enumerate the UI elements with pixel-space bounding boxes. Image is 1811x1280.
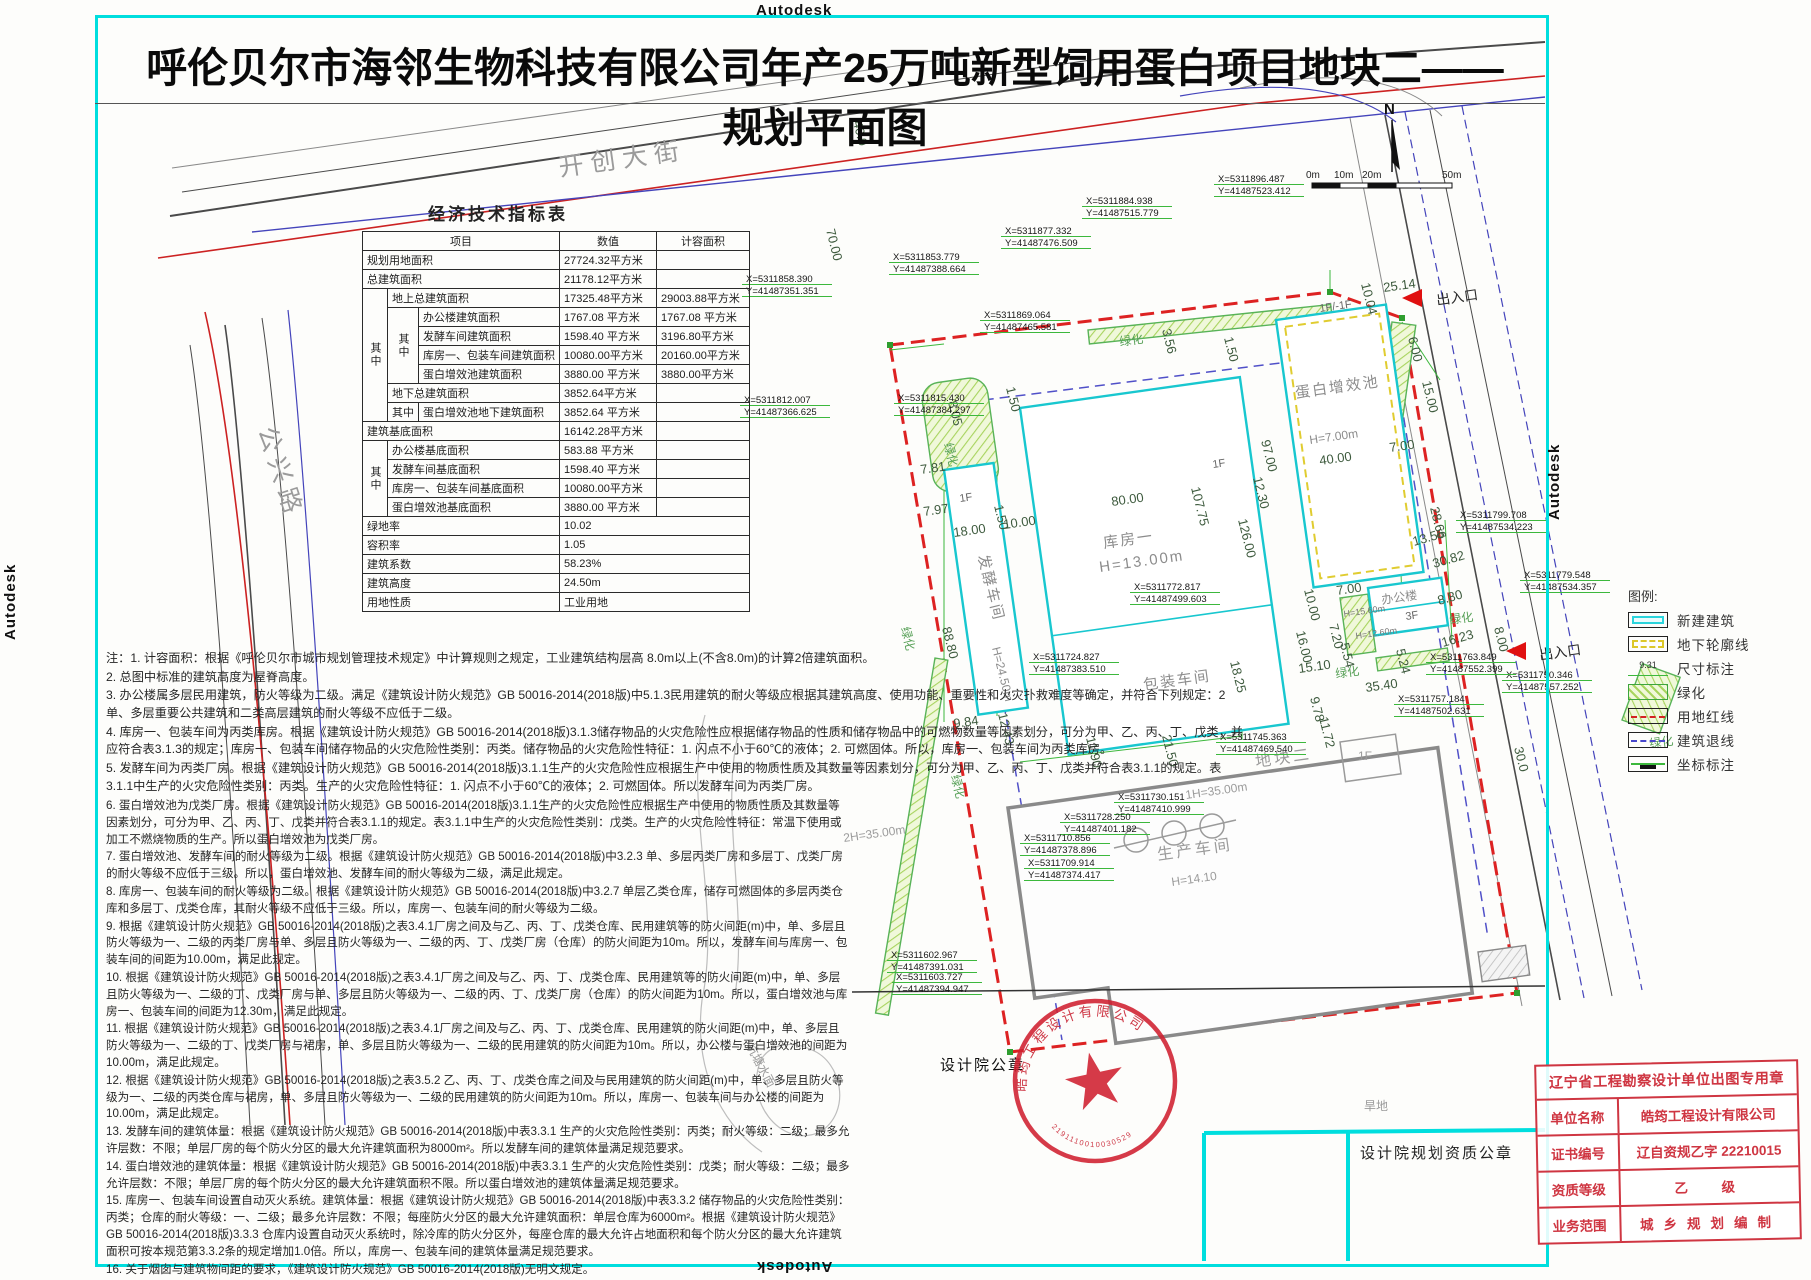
cell-value: 10.02 xyxy=(560,517,750,536)
cell-label: 建筑系数 xyxy=(363,555,560,574)
scanned-plan-page: 开创大街公兴路N0m10m20m50m出入口出入口发酵车间H=24.50m1F库… xyxy=(0,0,1811,1280)
cell-capacity xyxy=(657,251,750,270)
cell-capacity: 3196.80平方米 xyxy=(657,327,750,346)
planning-qualification-seal-label: 设计院规划资质公章 xyxy=(1360,1142,1513,1163)
certificate-key: 单位名称 xyxy=(1537,1099,1620,1135)
table-row: 蛋白增效池建筑面积 3880.00 平方米 3880.00平方米 xyxy=(363,365,750,384)
legend-item-red-line: 用地红线 xyxy=(1628,707,1788,724)
note-line: 14. 蛋白增效池的建筑体量：根据《建筑设计防火规范》GB 50016-2014… xyxy=(106,1159,850,1193)
certificate-value: 乙 级 xyxy=(1620,1167,1799,1205)
legend-item-dimension: 9.31 尺寸标注 xyxy=(1628,659,1788,676)
certificate-value: 皓筠工程设计有限公司 xyxy=(1619,1095,1798,1133)
cell-label: 库房一、包装车间基底面积 xyxy=(388,479,560,498)
col-value: 数值 xyxy=(560,232,657,251)
legend-title: 图例: xyxy=(1628,586,1788,605)
seal-number-text: 2191110010030529 xyxy=(1049,1107,1135,1159)
cell-label: 用地性质 xyxy=(363,593,560,612)
cell-value: 21178.12平方米 xyxy=(560,270,657,289)
cell-value: 10080.00平方米 xyxy=(560,346,657,365)
table-row: 绿地率 10.02 xyxy=(363,517,750,536)
note-line: 4. 库房一、包装车间为丙类库房。根据《建筑设计防火规范》GB 50016-20… xyxy=(106,724,1246,759)
certificate-value: 城乡规划编制 xyxy=(1621,1203,1800,1241)
certificate-row: 业务范围 城乡规划编制 xyxy=(1539,1203,1800,1242)
cell-label: 库房一、包装车间建筑面积 xyxy=(419,346,560,365)
note-line: 7. 蛋白增效池、发酵车间的耐火等级为二级。根据《建筑设计防火规范》GB 500… xyxy=(106,849,850,883)
coordinate-swatch-icon xyxy=(1628,756,1668,772)
cell-value: 58.23% xyxy=(560,555,750,574)
red-line-swatch-icon xyxy=(1628,708,1668,724)
legend-item-underground-outline: 地下轮廓线 xyxy=(1628,635,1788,652)
cell-capacity xyxy=(657,460,750,479)
cell-value: 工业用地 xyxy=(560,593,750,612)
greenery-swatch-icon xyxy=(1628,684,1668,700)
table-row: 规划用地面积 27724.32平方米 xyxy=(363,251,750,270)
cell-label: 容积率 xyxy=(363,536,560,555)
table-row: 发酵车间建筑面积 1598.40 平方米 3196.80平方米 xyxy=(363,327,750,346)
cell-capacity: 3880.00平方米 xyxy=(657,365,750,384)
col-item: 项目 xyxy=(363,232,560,251)
certificate-row: 单位名称 皓筠工程设计有限公司 xyxy=(1537,1095,1798,1136)
dimension-swatch-icon: 9.31 xyxy=(1628,660,1668,676)
page-title: 呼伦贝尔市海邻生物科技有限公司年产25万吨新型饲用蛋白项目地块二——规划平面图 xyxy=(130,34,1520,154)
cell-among: 其中 xyxy=(363,289,388,422)
note-line: 16. 关于烟囱与建筑物间距的要求，《建筑设计防火规范》GB 50016-201… xyxy=(106,1262,850,1279)
note-line: 15. 库房一、包装车间设置自动灭火系统。建筑体量：根据《建筑设计防火规范》GB… xyxy=(106,1193,850,1260)
cell-label: 办公楼基底面积 xyxy=(388,441,560,460)
certificate-value: 辽自资规乙字 22210015 xyxy=(1620,1131,1799,1169)
cell-value: 27724.32平方米 xyxy=(560,251,657,270)
note-line: 9. 根据《建筑设计防火规范》GB 50016-2014(2018版)之表3.4… xyxy=(106,919,850,969)
table-row: 用地性质 工业用地 xyxy=(363,593,750,612)
cell-capacity xyxy=(657,403,750,422)
legend-item-coordinate: 坐标标注 xyxy=(1628,755,1788,772)
legend-item-retreat-line: 建筑退线 xyxy=(1628,731,1788,748)
note-line: 10. 根据《建筑设计防火规范》GB 50016-2014(2018版)之表3.… xyxy=(106,970,850,1020)
legend-item-greenery: 绿化 xyxy=(1628,683,1788,700)
cell-among: 其中 xyxy=(388,308,419,384)
cell-value: 17325.48平方米 xyxy=(560,289,657,308)
cell-capacity xyxy=(657,498,750,517)
watermark-top: Autodesk xyxy=(756,2,832,19)
certificate-row: 证书编号 辽自资规乙字 22210015 xyxy=(1538,1131,1799,1172)
table-row: 其中 地上总建筑面积 17325.48平方米 29003.88平方米 xyxy=(363,289,750,308)
col-capacity: 计容面积 xyxy=(657,232,750,251)
cell-label: 地上总建筑面积 xyxy=(388,289,560,308)
cell-value: 3880.00 平方米 xyxy=(560,365,657,384)
table-row: 建筑高度 24.50m xyxy=(363,574,750,593)
cell-among: 其中 xyxy=(388,403,419,422)
table-title: 经济技术指标表 xyxy=(428,200,750,225)
table-row: 其中 办公楼基底面积 583.88 平方米 xyxy=(363,441,750,460)
table-row: 库房一、包装车间基底面积 10080.00平方米 xyxy=(363,479,750,498)
cell-label: 办公楼建筑面积 xyxy=(419,308,560,327)
legend-label: 用地红线 xyxy=(1677,706,1735,726)
cell-value: 1767.08 平方米 xyxy=(560,308,657,327)
cell-capacity: 20160.00平方米 xyxy=(657,346,750,365)
table-row: 其中 办公楼建筑面积 1767.08 平方米 1767.08 平方米 xyxy=(363,308,750,327)
round-company-seal: 皓筠工程设计有限公司 2191110010030529 xyxy=(982,968,1207,1193)
cell-value: 1598.40 平方米 xyxy=(560,460,657,479)
cell-label: 蛋白增效池地下建筑面积 xyxy=(419,403,560,422)
cell-label: 发酵车间建筑面积 xyxy=(419,327,560,346)
cell-value: 583.88 平方米 xyxy=(560,441,657,460)
note-line: 12. 根据《建筑设计防火规范》GB 50016-2014(2018版)之表3.… xyxy=(106,1073,850,1123)
cell-label: 蛋白增效池建筑面积 xyxy=(419,365,560,384)
certificate-key: 资质等级 xyxy=(1538,1171,1621,1207)
cell-value: 1598.40 平方米 xyxy=(560,327,657,346)
table-row: 建筑基底面积 16142.28平方米 xyxy=(363,422,750,441)
watermark-right: Autodesk xyxy=(1546,444,1563,520)
cell-label: 建筑高度 xyxy=(363,574,560,593)
note-line: 2. 总图中标准的建筑高度为屋脊高度。 xyxy=(106,669,1246,687)
table-row: 库房一、包装车间建筑面积 10080.00平方米 20160.00平方米 xyxy=(363,346,750,365)
cell-among: 其中 xyxy=(363,441,388,517)
seal-star-icon xyxy=(1061,1047,1129,1113)
cell-capacity xyxy=(657,270,750,289)
note-line: 13. 发酵车间的建筑体量：根据《建筑设计防火规范》GB 50016-2014(… xyxy=(106,1124,850,1158)
cell-capacity xyxy=(657,422,750,441)
legend: 图例: 新建建筑 地下轮廓线 9.31 尺寸标注 绿化 用地红线 建筑退线 坐标… xyxy=(1628,586,1788,779)
cell-label: 建筑基底面积 xyxy=(363,422,560,441)
cell-value: 10080.00平方米 xyxy=(560,479,657,498)
note-line: 3. 办公楼属多层民用建筑，防火等级为二级。满足《建筑设计防火规范》GB 500… xyxy=(106,687,1246,722)
watermark-left: Autodesk xyxy=(2,564,19,640)
cell-value: 3852.64 平方米 xyxy=(560,403,657,422)
dimension-sample: 9.31 xyxy=(1628,660,1668,676)
certificate-row: 资质等级 乙 级 xyxy=(1538,1167,1799,1208)
note-line: 6. 蛋白增效池为戊类厂房。根据《建筑设计防火规范》GB 50016-2014(… xyxy=(106,798,850,848)
certificate-stamp: 辽宁省工程勘察设计单位出图专用章 单位名称 皓筠工程设计有限公司 证书编号 辽自… xyxy=(1534,1059,1802,1244)
cell-value: 24.50m xyxy=(560,574,750,593)
cell-capacity xyxy=(657,384,750,403)
economic-indicator-table: 经济技术指标表 项目 数值 计容面积 规划用地面积 27724.32平方米 总建… xyxy=(362,200,750,612)
legend-item-new-building: 新建建筑 xyxy=(1628,611,1788,628)
table-row: 其中 蛋白增效池地下建筑面积 3852.64 平方米 xyxy=(363,403,750,422)
cell-capacity: 1767.08 平方米 xyxy=(657,308,750,327)
legend-label: 建筑退线 xyxy=(1677,730,1735,750)
underground-outline-swatch-icon xyxy=(1628,636,1668,652)
note-line: 11. 根据《建筑设计防火规范》GB 50016-2014(2018版)之表3.… xyxy=(106,1021,850,1071)
note-line: 5. 发酵车间为丙类厂房。根据《建筑设计防火规范》GB 50016-2014(2… xyxy=(106,760,1246,795)
new-building-swatch-icon xyxy=(1628,612,1668,628)
legend-label: 坐标标注 xyxy=(1677,754,1735,774)
table-row: 发酵车间基底面积 1598.40 平方米 xyxy=(363,460,750,479)
cell-capacity xyxy=(657,441,750,460)
table-row: 地下总建筑面积 3852.64平方米 xyxy=(363,384,750,403)
cell-label: 规划用地面积 xyxy=(363,251,560,270)
cell-label: 绿地率 xyxy=(363,517,560,536)
legend-label: 绿化 xyxy=(1677,682,1706,702)
cell-label: 蛋白增效池基底面积 xyxy=(388,498,560,517)
certificate-key: 业务范围 xyxy=(1539,1207,1622,1243)
legend-label: 尺寸标注 xyxy=(1677,658,1735,678)
table-row: 总建筑面积 21178.12平方米 xyxy=(363,270,750,289)
retreat-line-swatch-icon xyxy=(1628,732,1668,748)
legend-label: 新建建筑 xyxy=(1677,610,1735,630)
note-line: 注：1. 计容面积：根据《呼伦贝尔市城市规划管理技术规定》中计算规则之规定，工业… xyxy=(106,650,1246,668)
cell-capacity xyxy=(657,479,750,498)
table-row: 容积率 1.05 xyxy=(363,536,750,555)
cell-label: 总建筑面积 xyxy=(363,270,560,289)
cell-label: 发酵车间基底面积 xyxy=(388,460,560,479)
cell-value: 16142.28平方米 xyxy=(560,422,657,441)
cell-label: 地下总建筑面积 xyxy=(388,384,560,403)
cell-value: 3880.00 平方米 xyxy=(560,498,657,517)
cell-value: 3852.64平方米 xyxy=(560,384,657,403)
table-header-row: 项目 数值 计容面积 xyxy=(363,232,750,251)
certificate-title: 辽宁省工程勘察设计单位出图专用章 xyxy=(1536,1061,1797,1100)
notes-block-lower: 6. 蛋白增效池为戊类厂房。根据《建筑设计防火规范》GB 50016-2014(… xyxy=(106,798,850,1279)
cell-capacity: 29003.88平方米 xyxy=(657,289,750,308)
cell-value: 1.05 xyxy=(560,536,750,555)
table-row: 蛋白增效池基底面积 3880.00 平方米 xyxy=(363,498,750,517)
note-line: 8. 库房一、包装车间的耐火等级为二级。根据《建筑设计防火规范》GB 50016… xyxy=(106,884,850,918)
certificate-key: 证书编号 xyxy=(1538,1135,1621,1171)
notes-block-upper: 注：1. 计容面积：根据《呼伦贝尔市城市规划管理技术规定》中计算规则之规定，工业… xyxy=(106,650,1246,797)
legend-label: 地下轮廓线 xyxy=(1677,634,1750,654)
table-row: 建筑系数 58.23% xyxy=(363,555,750,574)
